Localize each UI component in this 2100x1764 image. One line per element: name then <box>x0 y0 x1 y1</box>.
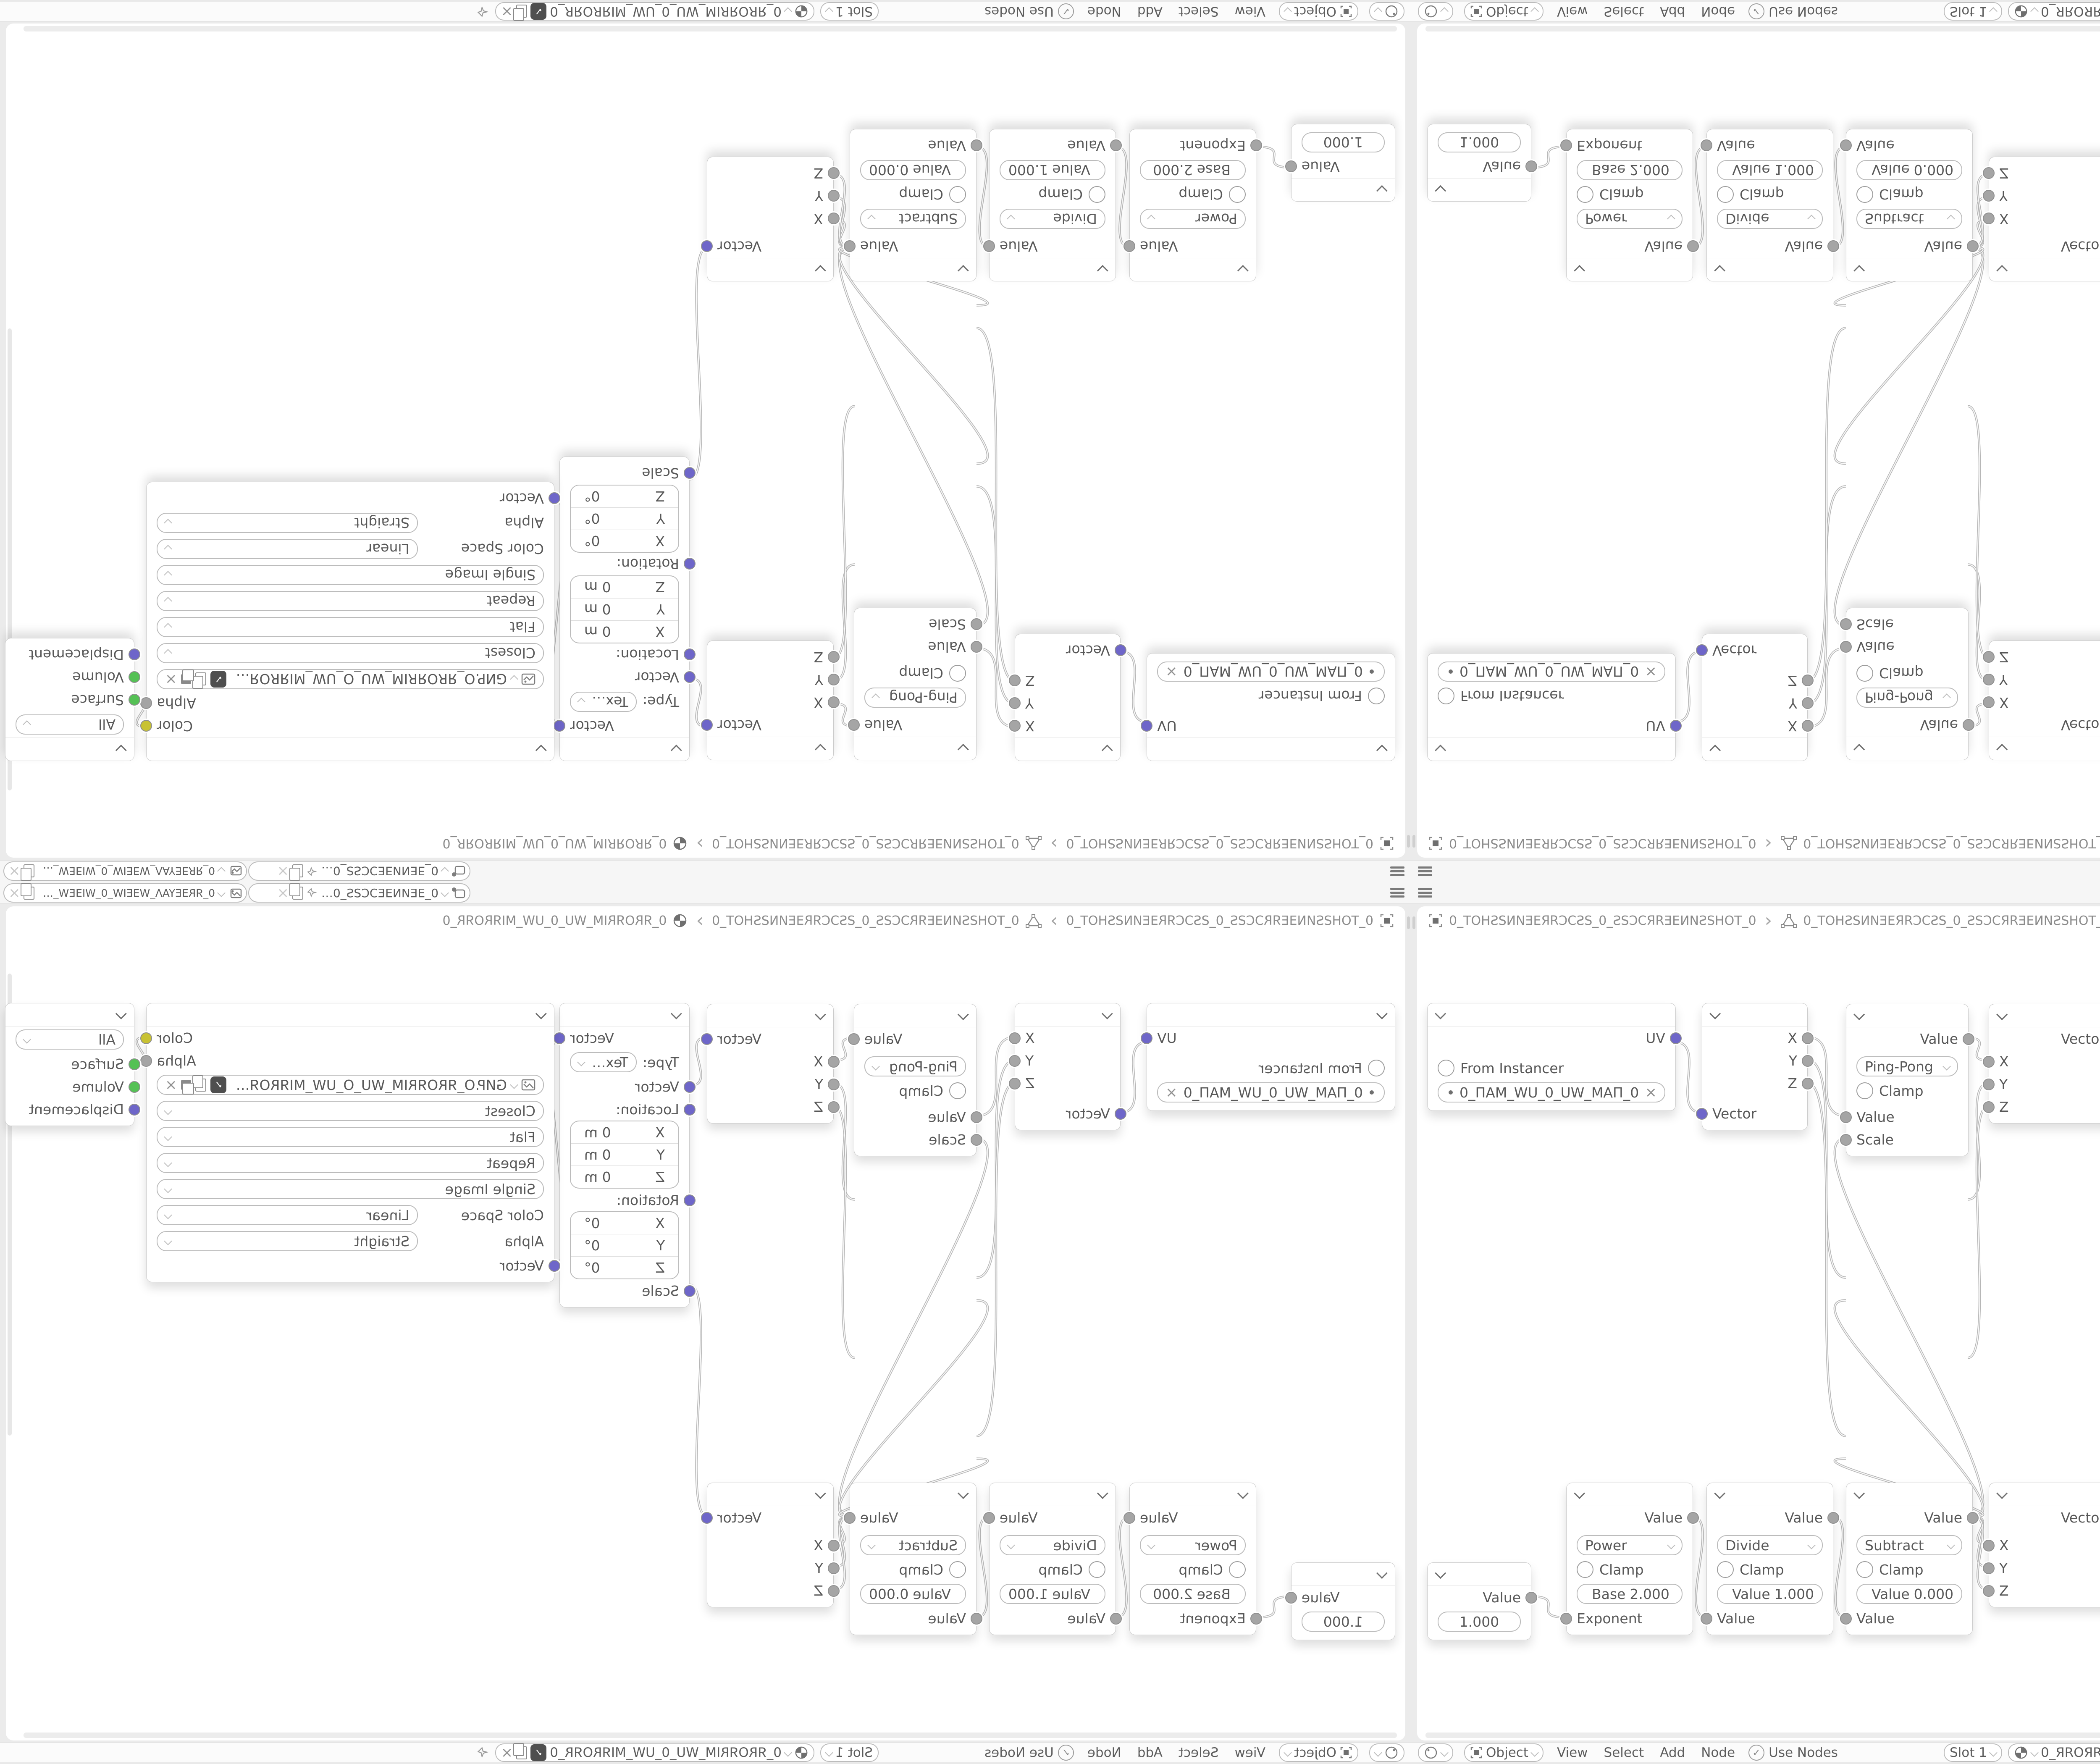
fake-user-shield-icon[interactable]: ✓ <box>530 1744 546 1761</box>
value-output-socket[interactable] <box>1525 160 1537 172</box>
base-field[interactable]: Base2.000 <box>1140 1584 1246 1604</box>
exponent-input-socket[interactable] <box>1560 1613 1572 1625</box>
vector-output-socket[interactable] <box>701 240 713 252</box>
value-field[interactable]: 1.000 <box>1302 1612 1385 1632</box>
pin-icon[interactable] <box>307 887 318 898</box>
x-output-socket[interactable] <box>1009 1032 1021 1044</box>
vector-output-socket[interactable] <box>701 1033 713 1045</box>
z-input-socket[interactable] <box>1983 1585 1995 1597</box>
collapse-icon[interactable] <box>1435 1008 1446 1019</box>
scene-selector[interactable]: 0_ƎEИNƎEƆCƧS_0_ƧSƆCƎEИNƎE_0 × <box>248 861 470 881</box>
x-input-socket[interactable] <box>1983 213 1995 224</box>
node-combine-xyz-1[interactable]: Vector X Y Z <box>1989 640 2100 760</box>
slot-dropdown[interactable]: Slot 1 <box>820 1743 879 1762</box>
operation-dropdown[interactable]: Ping-Pong <box>864 688 966 708</box>
clamp-checkbox[interactable] <box>1717 186 1734 203</box>
material-selector[interactable]: 0_ЯROЯRIM_WU_0_UW_MIЯROЯR_0 ✓ × <box>2008 1743 2100 1762</box>
collapse-icon[interactable] <box>1996 265 2008 276</box>
node-value[interactable]: Value 1.000 <box>1427 124 1531 202</box>
x-input-socket[interactable] <box>1983 1056 1995 1068</box>
operation-dropdown[interactable]: Ping-Pong <box>1856 688 1958 708</box>
y-output-socket[interactable] <box>1009 697 1021 709</box>
mapping-type-dropdown[interactable]: Texture <box>570 692 637 712</box>
collapse-icon[interactable] <box>115 745 127 756</box>
shader-type-dropdown[interactable]: Object <box>1279 2 1358 21</box>
node-math-divide[interactable]: Value Divide Clamp Value1.000 Value <box>989 129 1116 281</box>
displacement-input-socket[interactable] <box>129 648 140 660</box>
value-field[interactable]: Value0.000 <box>860 1584 966 1604</box>
value-output-socket[interactable] <box>1525 1592 1537 1604</box>
menu-add[interactable]: Add <box>1657 1745 1688 1760</box>
copy-icon[interactable] <box>516 5 527 18</box>
vector-input-socket[interactable] <box>1115 644 1126 656</box>
vector-input-socket[interactable] <box>684 1081 696 1093</box>
extension-dropdown[interactable]: Repeat <box>157 591 544 611</box>
exponent-input-socket[interactable] <box>1250 1613 1262 1625</box>
z-output-socket[interactable] <box>1802 1078 1814 1089</box>
displacement-input-socket[interactable] <box>129 1104 140 1116</box>
menu-select[interactable]: Select <box>1601 4 1647 19</box>
base-field[interactable]: Base2.000 <box>1577 160 1683 180</box>
value-input-socket[interactable] <box>1701 1613 1712 1625</box>
node-combine-xyz-2[interactable]: Vector X Y Z <box>1989 1483 2100 1607</box>
node-combine-xyz-1[interactable]: Vector X Y Z <box>707 1004 834 1123</box>
z-input-socket[interactable] <box>828 651 840 663</box>
y-input-socket[interactable] <box>828 674 840 685</box>
scale-input-socket[interactable] <box>684 1285 696 1297</box>
clamp-checkbox[interactable] <box>1856 1082 1873 1099</box>
collapse-icon[interactable] <box>1237 1488 1249 1499</box>
node-separate-xyz[interactable]: X Y Z Vector <box>1015 634 1121 761</box>
color-output-socket[interactable] <box>140 720 152 732</box>
alpha-dropdown[interactable]: Straight <box>157 1231 418 1251</box>
pin-icon[interactable] <box>307 866 318 877</box>
new-copy-icon[interactable] <box>292 865 303 878</box>
collapse-icon[interactable] <box>1714 1488 1725 1499</box>
source-dropdown[interactable]: Single Image <box>157 565 544 585</box>
value-output-socket[interactable] <box>1285 1592 1297 1604</box>
source-dropdown[interactable]: Single Image <box>157 1179 544 1199</box>
location-vector-fields[interactable]: X0 m Y0 m Z0 m <box>570 575 679 643</box>
vector-input-socket[interactable] <box>1115 1108 1126 1120</box>
menu-select[interactable]: Select <box>1176 1745 1221 1760</box>
menu-view[interactable]: View <box>1554 4 1591 19</box>
clamp-checkbox[interactable] <box>1229 1561 1246 1578</box>
value-field[interactable]: 1.000 <box>1302 132 1385 152</box>
slot-dropdown[interactable]: Slot 1 <box>820 2 879 21</box>
menu-hamburger-icon[interactable] <box>1418 874 1432 876</box>
y-output-socket[interactable] <box>1802 697 1814 709</box>
node-image-texture[interactable]: Color Alpha GИP.O_ЯROЯRIM_WU_O_UW_MIЯROЯ… <box>146 1003 554 1282</box>
x-output-socket[interactable] <box>1802 1032 1814 1044</box>
surface-input-socket[interactable] <box>129 694 140 706</box>
node-math-divide[interactable]: Value Divide Clamp Value1.000 Value <box>1706 1483 1833 1635</box>
node-mapping[interactable]: Vector Type:Texture Vector Location: X0 … <box>559 457 690 761</box>
value-output-socket[interactable] <box>1687 1512 1699 1524</box>
volume-input-socket[interactable] <box>129 671 140 683</box>
menu-add[interactable]: Add <box>1135 1745 1165 1760</box>
collapse-icon[interactable] <box>1435 1567 1446 1579</box>
vector-output-socket[interactable] <box>554 1032 565 1044</box>
copy-icon[interactable] <box>196 1079 207 1092</box>
scale-input-socket[interactable] <box>1840 1134 1852 1146</box>
vector-input-socket[interactable] <box>1696 644 1708 656</box>
alpha-output-socket[interactable] <box>140 1055 152 1067</box>
editor-type-selector[interactable] <box>1369 2 1404 21</box>
value-input-socket[interactable] <box>971 1613 982 1625</box>
material-selector[interactable]: 0_ЯROЯRIM_WU_0_UW_MIЯROЯR_0 ✓ × <box>495 1743 814 1762</box>
collapse-icon[interactable] <box>671 1008 682 1019</box>
color-output-socket[interactable] <box>140 1032 152 1044</box>
close-icon[interactable]: × <box>165 1078 177 1092</box>
operation-dropdown[interactable]: Power <box>1577 209 1683 229</box>
operation-dropdown[interactable]: Subtract <box>1856 1535 1962 1555</box>
rotation-input-socket[interactable] <box>684 558 696 570</box>
clamp-checkbox[interactable] <box>1229 186 1246 203</box>
node-math-ping-pong-1[interactable]: Value Ping-Pong Clamp Value Scale <box>1846 1004 1969 1156</box>
y-input-socket[interactable] <box>1983 190 1995 202</box>
location-y-field[interactable]: 0 m <box>584 1147 611 1163</box>
node-material-output[interactable]: All Surface Volume Displacement <box>5 1003 134 1126</box>
clamp-checkbox[interactable] <box>1856 186 1873 203</box>
collapse-icon[interactable] <box>535 1008 547 1019</box>
z-input-socket[interactable] <box>828 1585 840 1597</box>
z-output-socket[interactable] <box>1009 675 1021 686</box>
view-layer-selector[interactable]: 0_ЯRƎEYAΛ_WƎEIW_0_WIƎEW_ΛAYƎEЯR_0 × <box>3 861 247 881</box>
y-input-socket[interactable] <box>1983 674 1995 685</box>
vector-output-socket[interactable] <box>701 719 713 731</box>
operation-dropdown[interactable]: Divide <box>1000 1535 1105 1555</box>
operation-dropdown[interactable]: Divide <box>1717 1535 1823 1555</box>
node-math-divide[interactable]: Value Divide Clamp Value1.000 Value <box>989 1483 1116 1635</box>
z-input-socket[interactable] <box>1983 651 1995 663</box>
collapse-icon[interactable] <box>1097 1488 1108 1499</box>
value-output-socket[interactable] <box>848 719 860 731</box>
clamp-checkbox[interactable] <box>1089 1561 1105 1578</box>
rotation-z-field[interactable]: 0° <box>584 1260 600 1276</box>
rotation-input-socket[interactable] <box>684 1194 696 1206</box>
collapse-icon[interactable] <box>815 1488 826 1499</box>
interpolation-dropdown[interactable]: Closest <box>157 1101 544 1121</box>
clamp-checkbox[interactable] <box>949 665 966 682</box>
z-input-socket[interactable] <box>1983 1101 1995 1113</box>
base-field[interactable]: Base2.000 <box>1577 1584 1683 1604</box>
node-material-output[interactable]: All Surface Volume Displacement <box>5 638 134 761</box>
close-icon[interactable]: × <box>1165 1085 1178 1100</box>
unlink-icon[interactable]: × <box>277 886 289 900</box>
close-icon[interactable]: × <box>1645 1085 1657 1100</box>
value-field[interactable]: 1.000 <box>1438 132 1521 152</box>
value-field[interactable]: 1.000 <box>1438 1612 1521 1632</box>
value-output-socket[interactable] <box>1967 240 1979 252</box>
pin-icon[interactable] <box>477 1746 489 1759</box>
node-value[interactable]: Value 1.000 <box>1291 124 1395 202</box>
menu-node[interactable]: Node <box>1698 4 1738 19</box>
value-output-socket[interactable] <box>844 1512 856 1524</box>
target-dropdown[interactable]: All <box>16 1029 124 1050</box>
y-input-socket[interactable] <box>1983 1562 1995 1574</box>
clamp-checkbox[interactable] <box>1577 1561 1593 1578</box>
node-uv-map[interactable]: UV From Instancer 0_ПAM_WU_0_UW_MAП_0× <box>1427 1003 1676 1111</box>
location-input-socket[interactable] <box>684 648 696 660</box>
value-output-socket[interactable] <box>1123 240 1135 252</box>
y-input-socket[interactable] <box>828 1079 840 1090</box>
exponent-input-socket[interactable] <box>1250 139 1262 151</box>
x-output-socket[interactable] <box>1009 720 1021 732</box>
value-input-socket[interactable] <box>1840 139 1852 151</box>
value-input-socket[interactable] <box>1840 1111 1852 1123</box>
operation-dropdown[interactable]: Subtract <box>860 209 966 229</box>
rotation-x-field[interactable]: 0° <box>584 533 600 549</box>
collapse-icon[interactable] <box>1853 1488 1865 1499</box>
value-output-socket[interactable] <box>844 240 856 252</box>
image-datablock-field[interactable]: GИP.O_ЯROЯRIM_WU_O_UW_MIЯROЯR_O.PNG ✓ × <box>157 669 544 689</box>
node-combine-xyz-1[interactable]: Vector X Y Z <box>1989 1004 2100 1123</box>
operation-dropdown[interactable]: Ping-Pong <box>1856 1056 1958 1076</box>
collapse-icon[interactable] <box>1376 1567 1388 1579</box>
collapse-icon[interactable] <box>1376 1008 1388 1019</box>
x-input-socket[interactable] <box>828 1540 840 1551</box>
use-nodes-checkbox[interactable]: ✓Use Nodes <box>984 1745 1074 1761</box>
material-selector[interactable]: 0_ЯROЯRIM_WU_0_UW_MIЯROЯR_0 ✓ × <box>2008 2 2100 21</box>
view-layer-selector[interactable]: 0_ЯRƎEYAΛ_WƎEIW_0_WIƎEW_ΛAYƎEЯR_0 × <box>3 883 247 903</box>
node-separate-xyz[interactable]: X Y Z Vector <box>1702 634 1808 761</box>
rotation-vector-fields[interactable]: X0° Y0° Z0° <box>570 485 679 553</box>
left-scrollbar[interactable] <box>1407 835 1410 848</box>
menu-view[interactable]: View <box>1232 4 1268 19</box>
menu-add[interactable]: Add <box>1135 4 1165 19</box>
collapse-icon[interactable] <box>1097 265 1108 276</box>
collapse-icon[interactable] <box>958 265 969 276</box>
value-output-socket[interactable] <box>1967 1512 1979 1524</box>
node-math-power[interactable]: Value Power Clamp Base2.000 Exponent <box>1566 1483 1693 1635</box>
vector-input-socket[interactable] <box>549 1260 560 1272</box>
clamp-checkbox[interactable] <box>1856 1561 1873 1578</box>
value-field[interactable]: Value1.000 <box>1717 1584 1823 1604</box>
value-input-socket[interactable] <box>971 139 982 151</box>
operation-dropdown[interactable]: Power <box>1577 1535 1683 1555</box>
value-input-socket[interactable] <box>1110 139 1122 151</box>
left-scrollbar[interactable] <box>1412 916 1415 929</box>
clamp-checkbox[interactable] <box>1717 1561 1734 1578</box>
close-icon[interactable]: × <box>8 864 21 878</box>
copy-icon[interactable] <box>196 673 207 686</box>
menu-hamburger-icon[interactable] <box>1390 888 1404 890</box>
scale-input-socket[interactable] <box>971 1134 982 1146</box>
scale-input-socket[interactable] <box>1840 618 1852 630</box>
uv-output-socket[interactable] <box>1141 1032 1152 1044</box>
z-output-socket[interactable] <box>1802 675 1814 686</box>
node-uv-map[interactable]: UV From Instancer 0_ПAM_WU_0_UW_MAП_0× <box>1147 1003 1395 1111</box>
node-math-power[interactable]: Value Power Clamp Base2.000 Exponent <box>1566 129 1693 281</box>
menu-node[interactable]: Node <box>1085 4 1124 19</box>
collapse-icon[interactable] <box>1853 744 1865 755</box>
vector-input-socket[interactable] <box>684 671 696 683</box>
fake-user-shield-icon[interactable]: ✓ <box>530 3 546 20</box>
base-field[interactable]: Base2.000 <box>1140 160 1246 180</box>
exponent-input-socket[interactable] <box>1560 139 1572 151</box>
value-output-socket[interactable] <box>983 240 995 252</box>
from-instancer-checkbox[interactable] <box>1368 688 1385 704</box>
clamp-checkbox[interactable] <box>949 1561 966 1578</box>
from-instancer-checkbox[interactable] <box>1368 1060 1385 1076</box>
x-input-socket[interactable] <box>1983 696 1995 708</box>
unpack-icon[interactable] <box>181 674 192 684</box>
y-output-socket[interactable] <box>1802 1055 1814 1067</box>
vector-input-socket[interactable] <box>549 492 560 504</box>
use-nodes-checkbox[interactable]: ✓Use Nodes <box>1748 3 1838 19</box>
new-copy-icon[interactable] <box>24 887 35 900</box>
alpha-output-socket[interactable] <box>140 697 152 709</box>
scale-input-socket[interactable] <box>684 467 696 479</box>
close-icon[interactable]: × <box>8 886 21 900</box>
rotation-z-field[interactable]: 0° <box>584 488 600 505</box>
collapse-icon[interactable] <box>815 744 826 755</box>
value-output-socket[interactable] <box>1963 1033 1974 1045</box>
new-copy-icon[interactable] <box>292 887 303 900</box>
operation-dropdown[interactable]: Divide <box>1000 209 1105 229</box>
pin-icon[interactable] <box>477 5 489 18</box>
x-input-socket[interactable] <box>828 1056 840 1068</box>
scene-selector[interactable]: 0_ƎEИNƎEƆCƧS_0_ƧSƆCƎEИNƎE_0 × <box>248 883 470 903</box>
value-input-socket[interactable] <box>971 1111 982 1123</box>
vector-input-socket[interactable] <box>1696 1108 1708 1120</box>
shader-type-dropdown[interactable]: Object <box>1464 1743 1543 1762</box>
node-math-power[interactable]: Value Power Clamp Base2.000 Exponent <box>1129 129 1256 281</box>
collapse-icon[interactable] <box>815 265 826 276</box>
y-input-socket[interactable] <box>1983 1079 1995 1090</box>
uv-output-socket[interactable] <box>1141 720 1152 732</box>
x-output-socket[interactable] <box>1802 720 1814 732</box>
node-math-divide[interactable]: Value Divide Clamp Value1.000 Value <box>1706 129 1833 281</box>
volume-input-socket[interactable] <box>129 1081 140 1093</box>
node-header[interactable] <box>1147 1003 1395 1026</box>
rotation-x-field[interactable]: 0° <box>584 1215 600 1231</box>
value-output-socket[interactable] <box>1827 1512 1839 1524</box>
shader-type-dropdown[interactable]: Object <box>1464 2 1543 21</box>
collapse-icon[interactable] <box>1376 185 1388 197</box>
uv-output-socket[interactable] <box>1670 720 1682 732</box>
node-value[interactable]: Value 1.000 <box>1291 1562 1395 1640</box>
value-output-socket[interactable] <box>848 1033 860 1045</box>
use-nodes-checkbox[interactable]: ✓Use Nodes <box>1748 1745 1838 1761</box>
left-scrollbar[interactable] <box>1412 835 1415 848</box>
node-math-subtract[interactable]: Value Subtract Clamp Value0.000 Value <box>1846 1483 1973 1635</box>
collapse-icon[interactable] <box>1714 265 1725 276</box>
node-combine-xyz-2[interactable]: Vector X Y Z <box>707 1483 834 1607</box>
collapse-icon[interactable] <box>1102 745 1113 756</box>
node-mapping[interactable]: Vector Type:Texture Vector Location: X0 … <box>559 1003 690 1307</box>
clamp-checkbox[interactable] <box>949 186 966 203</box>
menu-node[interactable]: Node <box>1085 1745 1124 1760</box>
rotation-vector-fields[interactable]: X0° Y0° Z0° <box>570 1211 679 1279</box>
node-uv-map[interactable]: UV From Instancer 0_ПAM_WU_0_UW_MAП_0× <box>1147 653 1395 761</box>
location-vector-fields[interactable]: X0 m Y0 m Z0 m <box>570 1121 679 1189</box>
collapse-icon[interactable] <box>1574 265 1585 276</box>
left-scrollbar[interactable] <box>1407 916 1410 929</box>
node-value[interactable]: Value 1.000 <box>1427 1562 1531 1640</box>
collapse-icon[interactable] <box>1996 1488 2008 1499</box>
node-math-ping-pong-1[interactable]: Value Ping-Pong Clamp Value Scale <box>854 608 976 760</box>
alpha-dropdown[interactable]: Straight <box>157 513 418 533</box>
node-math-subtract[interactable]: Value Subtract Clamp Value0.000 Value <box>1846 129 1973 281</box>
collapse-icon[interactable] <box>958 1488 969 1499</box>
uv-map-name-field[interactable]: 0_ПAM_WU_0_UW_MAП_0× <box>1157 1082 1385 1102</box>
location-input-socket[interactable] <box>684 1104 696 1116</box>
value-input-socket[interactable] <box>1701 139 1712 151</box>
value-output-socket[interactable] <box>1123 1512 1135 1524</box>
projection-dropdown[interactable]: Flat <box>157 1127 544 1147</box>
slot-dropdown[interactable]: Slot 1 <box>1944 1743 2002 1762</box>
use-nodes-checkbox[interactable]: ✓Use Nodes <box>984 3 1074 19</box>
node-separate-xyz[interactable]: X Y Z Vector <box>1015 1003 1121 1130</box>
collapse-icon[interactable] <box>1237 265 1249 276</box>
copy-icon[interactable] <box>516 1746 527 1759</box>
node-uv-map[interactable]: UV From Instancer 0_ПAM_WU_0_UW_MAП_0× <box>1427 653 1676 761</box>
projection-dropdown[interactable]: Flat <box>157 617 544 637</box>
value-output-socket[interactable] <box>1687 240 1699 252</box>
shader-type-dropdown[interactable]: Object <box>1279 1743 1358 1762</box>
color-space-dropdown[interactable]: Linear <box>157 1205 418 1225</box>
value-field[interactable]: Value0.000 <box>860 160 966 180</box>
value-output-socket[interactable] <box>983 1512 995 1524</box>
uv-output-socket[interactable] <box>1670 1032 1682 1044</box>
node-math-ping-pong-1[interactable]: Value Ping-Pong Clamp Value Scale <box>1846 608 1969 760</box>
menu-select[interactable]: Select <box>1176 4 1221 19</box>
rotation-y-field[interactable]: 0° <box>584 511 600 527</box>
uv-map-name-field[interactable]: 0_ПAM_WU_0_UW_MAП_0× <box>1438 661 1665 682</box>
close-icon[interactable]: × <box>501 4 513 18</box>
target-dropdown[interactable]: All <box>16 714 124 735</box>
value-input-socket[interactable] <box>971 641 982 653</box>
menu-view[interactable]: View <box>1232 1745 1268 1760</box>
collapse-icon[interactable] <box>1996 744 2008 755</box>
rotation-y-field[interactable]: 0° <box>584 1237 600 1254</box>
collapse-icon[interactable] <box>1996 1009 2008 1020</box>
clamp-checkbox[interactable] <box>949 1082 966 1099</box>
clamp-checkbox[interactable] <box>1856 665 1873 682</box>
value-input-socket[interactable] <box>1840 1613 1852 1625</box>
menu-add[interactable]: Add <box>1657 4 1688 19</box>
extension-dropdown[interactable]: Repeat <box>157 1153 544 1173</box>
scale-input-socket[interactable] <box>971 618 982 630</box>
value-output-socket[interactable] <box>1963 719 1974 731</box>
x-input-socket[interactable] <box>1983 1540 1995 1551</box>
collapse-icon[interactable] <box>1102 1008 1113 1019</box>
node-math-subtract[interactable]: Value Subtract Clamp Value0.000 Value <box>850 1483 976 1635</box>
collapse-icon[interactable] <box>1574 1488 1585 1499</box>
collapse-icon[interactable] <box>115 1008 127 1019</box>
location-z-field[interactable]: 0 m <box>584 579 611 596</box>
operation-dropdown[interactable]: Divide <box>1717 209 1823 229</box>
menu-hamburger-icon[interactable] <box>1418 888 1432 890</box>
operation-dropdown[interactable]: Subtract <box>1856 209 1962 229</box>
operation-dropdown[interactable]: Subtract <box>860 1535 966 1555</box>
x-input-socket[interactable] <box>828 696 840 708</box>
fake-user-shield-icon[interactable]: ✓ <box>211 671 227 688</box>
unpack-icon[interactable] <box>181 1080 192 1090</box>
collapse-icon[interactable] <box>1709 745 1721 756</box>
collapse-icon[interactable] <box>958 744 969 755</box>
vector-output-socket[interactable] <box>701 1512 713 1524</box>
mapping-type-dropdown[interactable]: Texture <box>570 1052 637 1072</box>
value-field[interactable]: Value0.000 <box>1856 160 1962 180</box>
collapse-icon[interactable] <box>1853 1009 1865 1020</box>
node-math-power[interactable]: Value Power Clamp Base2.000 Exponent <box>1129 1483 1256 1635</box>
close-icon[interactable]: × <box>1645 664 1657 679</box>
collapse-icon[interactable] <box>1709 1008 1721 1019</box>
uv-map-name-field[interactable]: 0_ПAM_WU_0_UW_MAП_0× <box>1157 661 1385 682</box>
